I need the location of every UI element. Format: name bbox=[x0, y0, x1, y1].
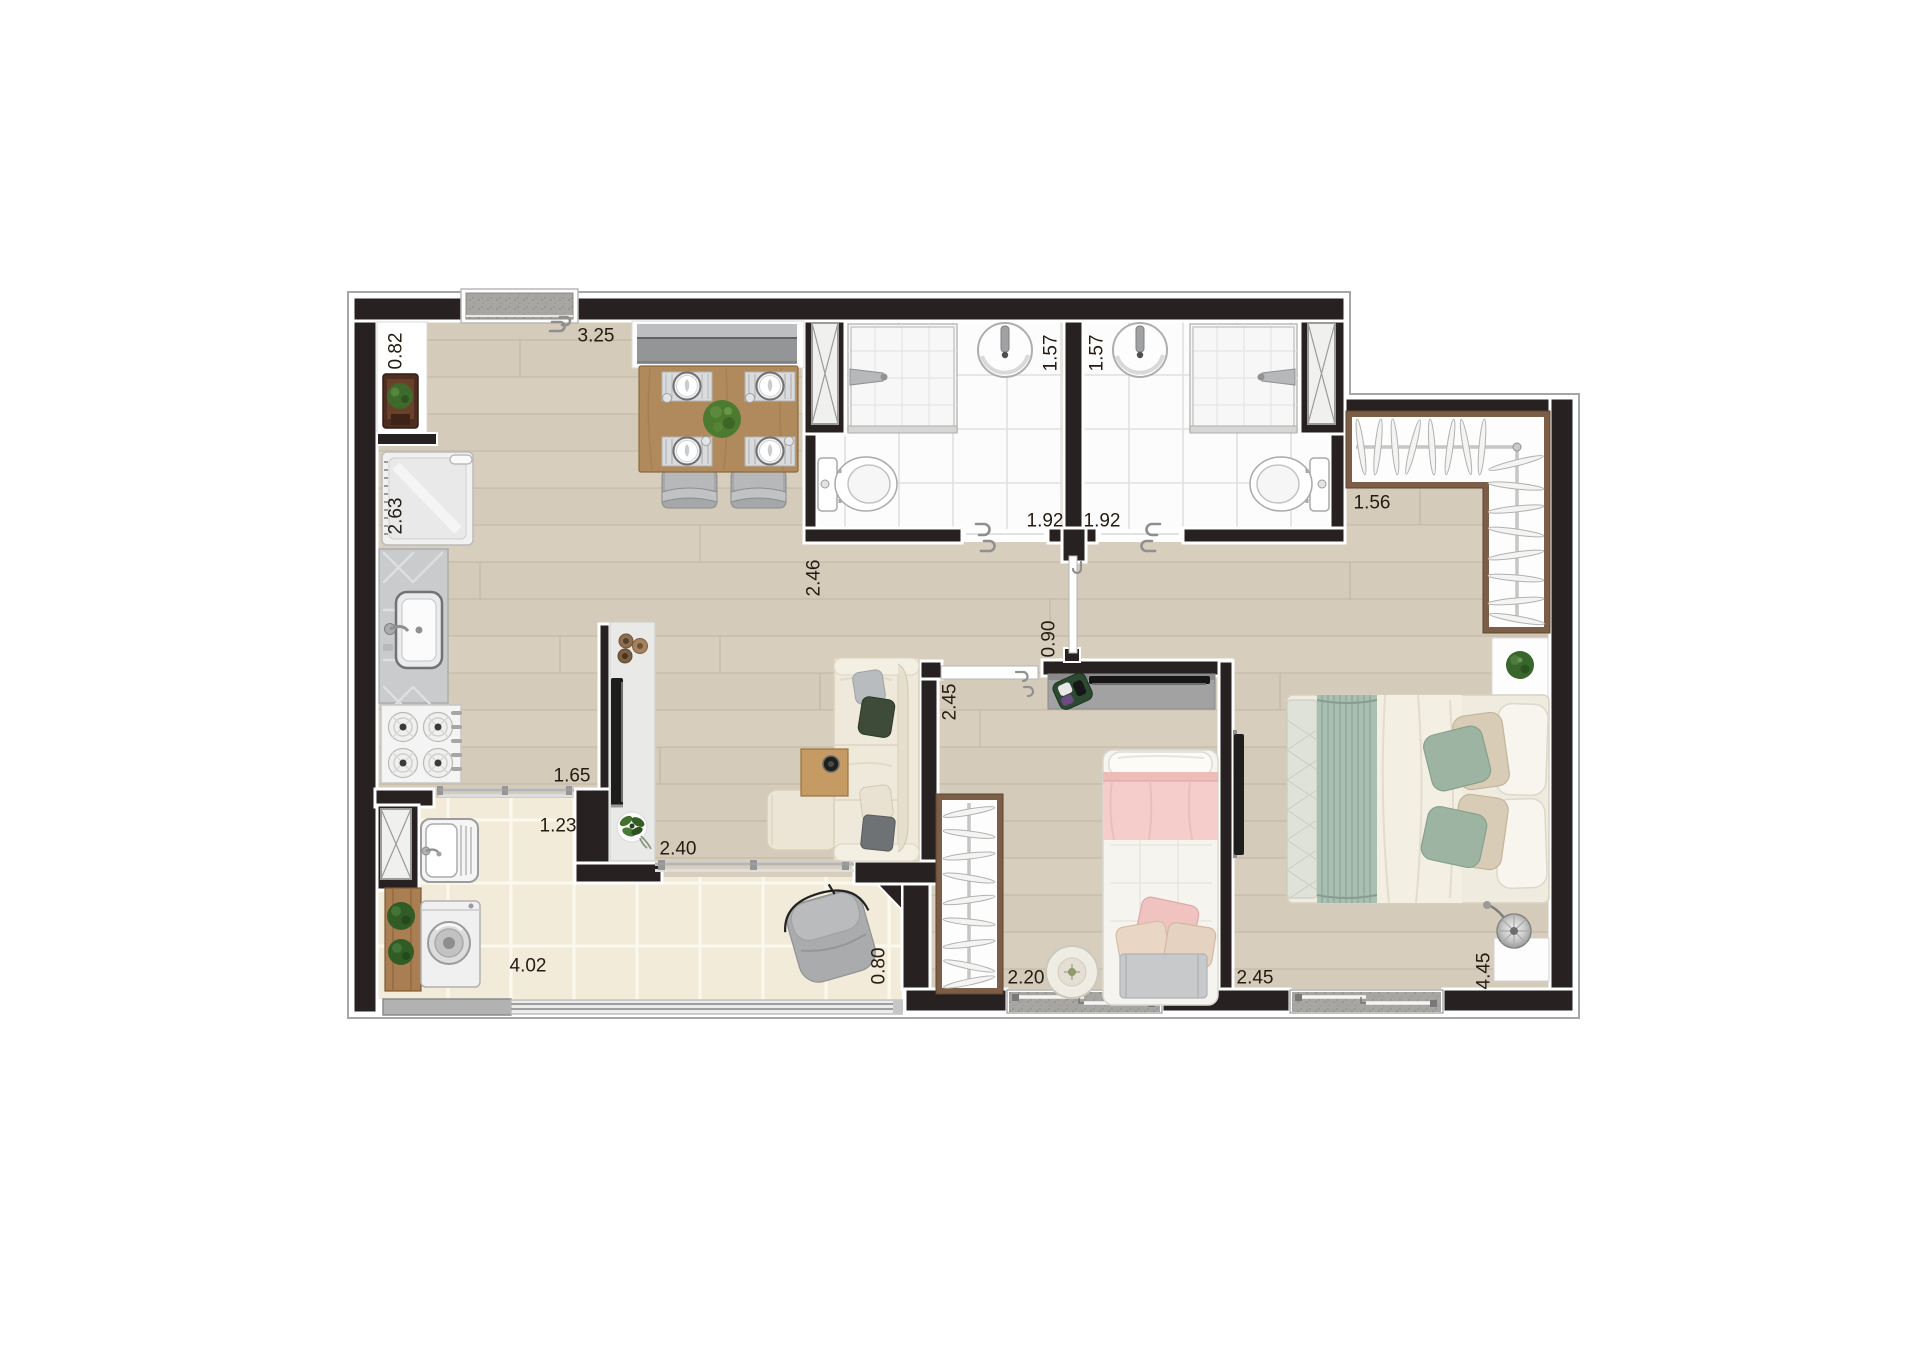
svg-text:2.45: 2.45 bbox=[1237, 968, 1274, 989]
svg-text:1.92: 1.92 bbox=[1027, 511, 1064, 532]
svg-text:2.63: 2.63 bbox=[386, 498, 407, 535]
svg-text:1.65: 1.65 bbox=[554, 766, 591, 787]
svg-text:3.25: 3.25 bbox=[578, 326, 615, 347]
svg-text:1.56: 1.56 bbox=[1354, 493, 1391, 514]
svg-text:0.80: 0.80 bbox=[869, 948, 890, 985]
svg-text:1.57: 1.57 bbox=[1087, 335, 1108, 372]
svg-text:2.46: 2.46 bbox=[804, 560, 825, 597]
svg-text:4.45: 4.45 bbox=[1474, 953, 1495, 990]
svg-text:1.23: 1.23 bbox=[540, 816, 577, 837]
svg-text:1.57: 1.57 bbox=[1041, 335, 1062, 372]
svg-text:2.40: 2.40 bbox=[660, 839, 697, 860]
svg-text:0.90: 0.90 bbox=[1039, 621, 1060, 658]
svg-text:0.82: 0.82 bbox=[386, 333, 407, 370]
svg-text:4.02: 4.02 bbox=[510, 956, 547, 977]
svg-text:2.20: 2.20 bbox=[1008, 968, 1045, 989]
svg-text:2.45: 2.45 bbox=[940, 684, 961, 721]
svg-text:1.92: 1.92 bbox=[1084, 511, 1121, 532]
